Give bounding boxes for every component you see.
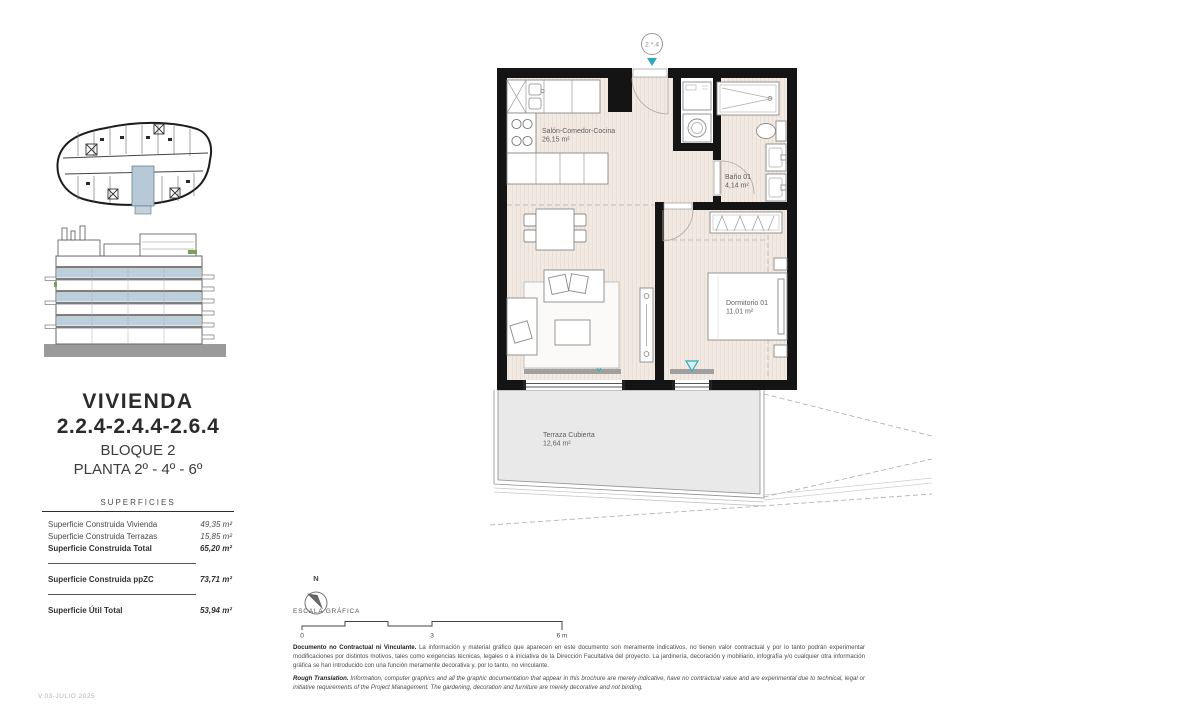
north-label: N — [313, 574, 318, 583]
scale-tick: 6 m — [557, 633, 568, 640]
room-label: Salón-Comedor-Cocina — [542, 128, 615, 135]
radiator — [640, 288, 653, 362]
bedroom-window — [672, 380, 712, 390]
shower — [717, 82, 779, 115]
block-label: BLOQUE 2 — [40, 442, 236, 461]
disclaimer-spanish: Documento no Contractual ni Vinculante. … — [293, 643, 865, 670]
row-label: Superficie Construida Terrazas — [48, 532, 157, 541]
row-value: 65,20 m² — [200, 544, 232, 553]
row-label: Superficie Construida Total — [48, 544, 152, 553]
disclaimer-body: Information, computer graphics and all t… — [293, 675, 865, 691]
building-elevation-thumbnail — [42, 220, 228, 362]
highlighted-floors — [57, 269, 201, 326]
coffee-table — [555, 320, 590, 345]
nightstand — [774, 345, 787, 357]
table-row: Superficie Útil Total 53,94 m² — [40, 604, 236, 616]
living-window — [523, 380, 625, 390]
table-row: Superficie Construida Total 65,20 m² — [40, 542, 236, 554]
armchair — [507, 298, 537, 355]
scale-tick: 0 — [300, 633, 304, 640]
table-separator — [48, 563, 196, 564]
row-label: Superficie Construida Vivienda — [48, 520, 157, 529]
building-keyplan-thumbnail — [50, 110, 220, 220]
unit-title-block: VIVIENDA 2.2.4-2.4.4-2.6.4 BLOQUE 2 PLAN… — [40, 390, 236, 480]
disclaimer-english: Rough Translation. Information, computer… — [293, 674, 865, 692]
terrace — [494, 390, 764, 506]
unit-bubble: 2.*.4 — [642, 34, 663, 67]
brochure-page: VIVIENDA 2.2.4-2.4.4-2.6.4 BLOQUE 2 PLAN… — [0, 0, 1181, 723]
highlighted-unit — [132, 166, 154, 206]
table-row: Superficie Construida Vivienda 49,35 m² — [40, 518, 236, 530]
wardrobe — [710, 212, 782, 233]
floor-plan: 2.*.4 — [480, 28, 940, 558]
surfaces-divider — [42, 511, 234, 512]
table-row: Superficie Construida ppZC 73,71 m² — [40, 573, 236, 585]
row-label: Superficie Útil Total — [48, 606, 123, 615]
scale-bar: 0 3 6 m — [293, 616, 583, 640]
table-separator — [48, 594, 196, 595]
version-note: V.03-JULIO 2025 — [38, 693, 95, 700]
row-value: 15,85 m² — [200, 532, 232, 541]
room-area: 12,64 m² — [543, 441, 571, 448]
unit-numbers: 2.2.4-2.4.4-2.6.4 — [40, 414, 236, 439]
surfaces-table: SUPERFICIES Superficie Construida Vivien… — [40, 498, 236, 616]
ground — [44, 344, 226, 357]
scale-label: ESCALA GRÁFICA — [293, 608, 360, 615]
floors-label: PLANTA 2º - 4º - 6º — [40, 461, 236, 480]
disclaimer-lead: Documento no Contractual ni Vinculante. — [293, 644, 416, 651]
nightstand — [774, 258, 787, 270]
sofa — [544, 270, 604, 302]
scale-tick: 3 — [430, 633, 434, 640]
room-label: Baño 01 — [725, 174, 751, 181]
entrance-marker-icon — [647, 58, 657, 66]
surfaces-heading: SUPERFICIES — [40, 498, 236, 507]
room-area: 11,01 m² — [726, 309, 754, 316]
window-sill — [524, 369, 621, 374]
disclaimer-lead: Rough Translation. — [293, 675, 349, 682]
table-row: Superficie Construida Terrazas 15,85 m² — [40, 530, 236, 542]
row-value: 73,71 m² — [200, 575, 232, 584]
room-area: 4,14 m² — [725, 183, 749, 190]
room-area: 26,15 m² — [542, 137, 570, 144]
row-label: Superficie Construida ppZC — [48, 575, 154, 584]
unit-bubble-label: 2.*.4 — [645, 42, 659, 49]
row-value: 49,35 m² — [200, 520, 232, 529]
row-value: 53,94 m² — [200, 606, 232, 615]
page-title: VIVIENDA — [40, 390, 236, 414]
room-label: Dormitorio 01 — [726, 300, 768, 307]
room-label: Terraza Cubierta — [543, 432, 595, 439]
